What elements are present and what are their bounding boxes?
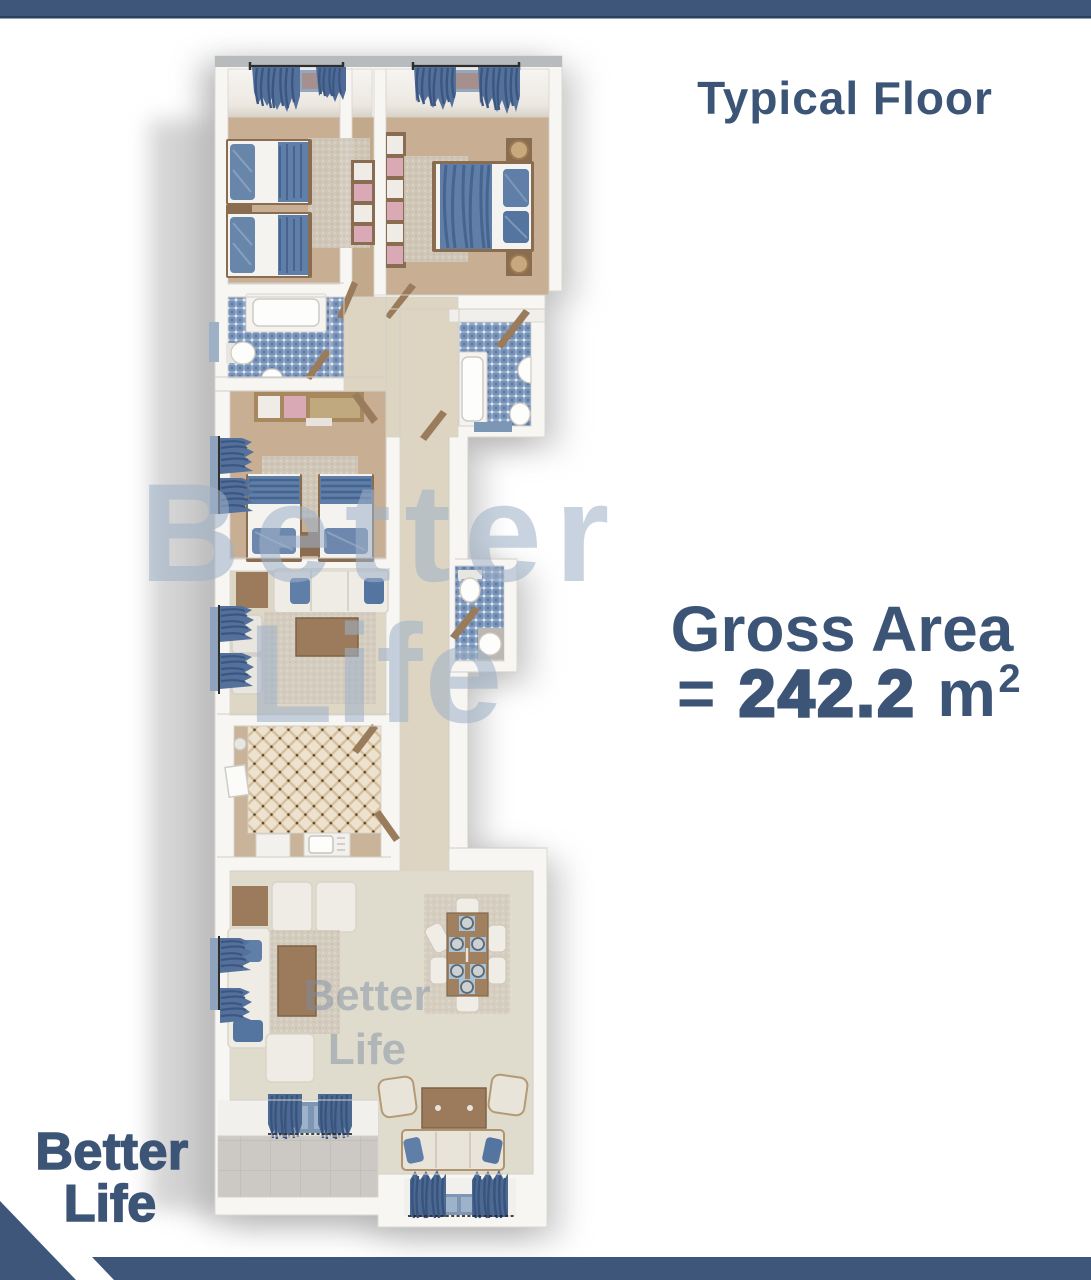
svg-text:Gross Area: Gross Area: [671, 593, 1014, 665]
svg-text:Better: Better: [35, 1123, 188, 1181]
svg-text:Life: Life: [248, 595, 505, 752]
svg-text:Better: Better: [303, 971, 430, 1020]
svg-text:Typical Floor: Typical Floor: [697, 72, 993, 124]
svg-text:Better: Better: [140, 454, 623, 611]
svg-text:= 242.2 m2: = 242.2 m2: [677, 656, 1023, 730]
svg-text:Life: Life: [64, 1175, 156, 1233]
svg-text:Life: Life: [328, 1025, 406, 1074]
